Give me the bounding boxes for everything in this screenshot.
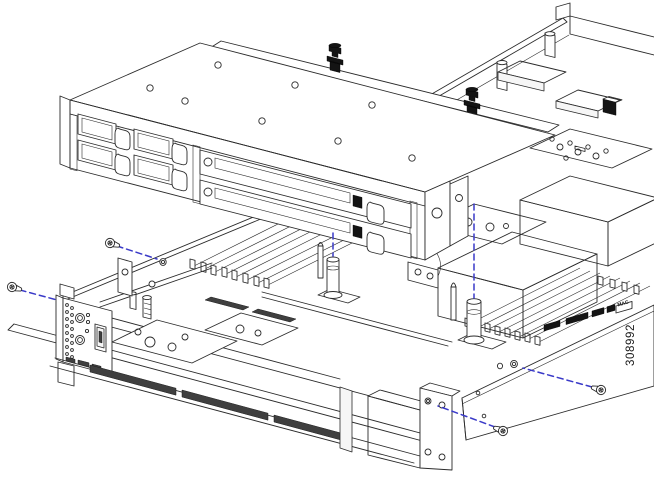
- rear-black-component: [603, 99, 616, 115]
- usb-port: [95, 324, 106, 352]
- emi-gasket-strip-2: [182, 390, 268, 420]
- tray-handle: [115, 128, 130, 150]
- tray-handle: [172, 143, 187, 165]
- tray-handle: [172, 169, 187, 191]
- screw-2: [104, 237, 121, 250]
- tray-handle: [115, 154, 130, 176]
- screw-guide-dash-1: [20, 290, 57, 300]
- board-connector-1: [205, 297, 249, 310]
- figure-illustration: MAC: [0, 0, 654, 482]
- front-sill-gaskets: [50, 358, 420, 463]
- screw-1: [6, 281, 22, 294]
- figure-number: 308992: [625, 324, 637, 366]
- tray-handle: [367, 232, 384, 254]
- fan-module: [340, 383, 460, 470]
- screw-guide-dash-2: [117, 246, 157, 259]
- figure-canvas: MAC: [0, 0, 654, 482]
- tray-handle: [367, 202, 384, 224]
